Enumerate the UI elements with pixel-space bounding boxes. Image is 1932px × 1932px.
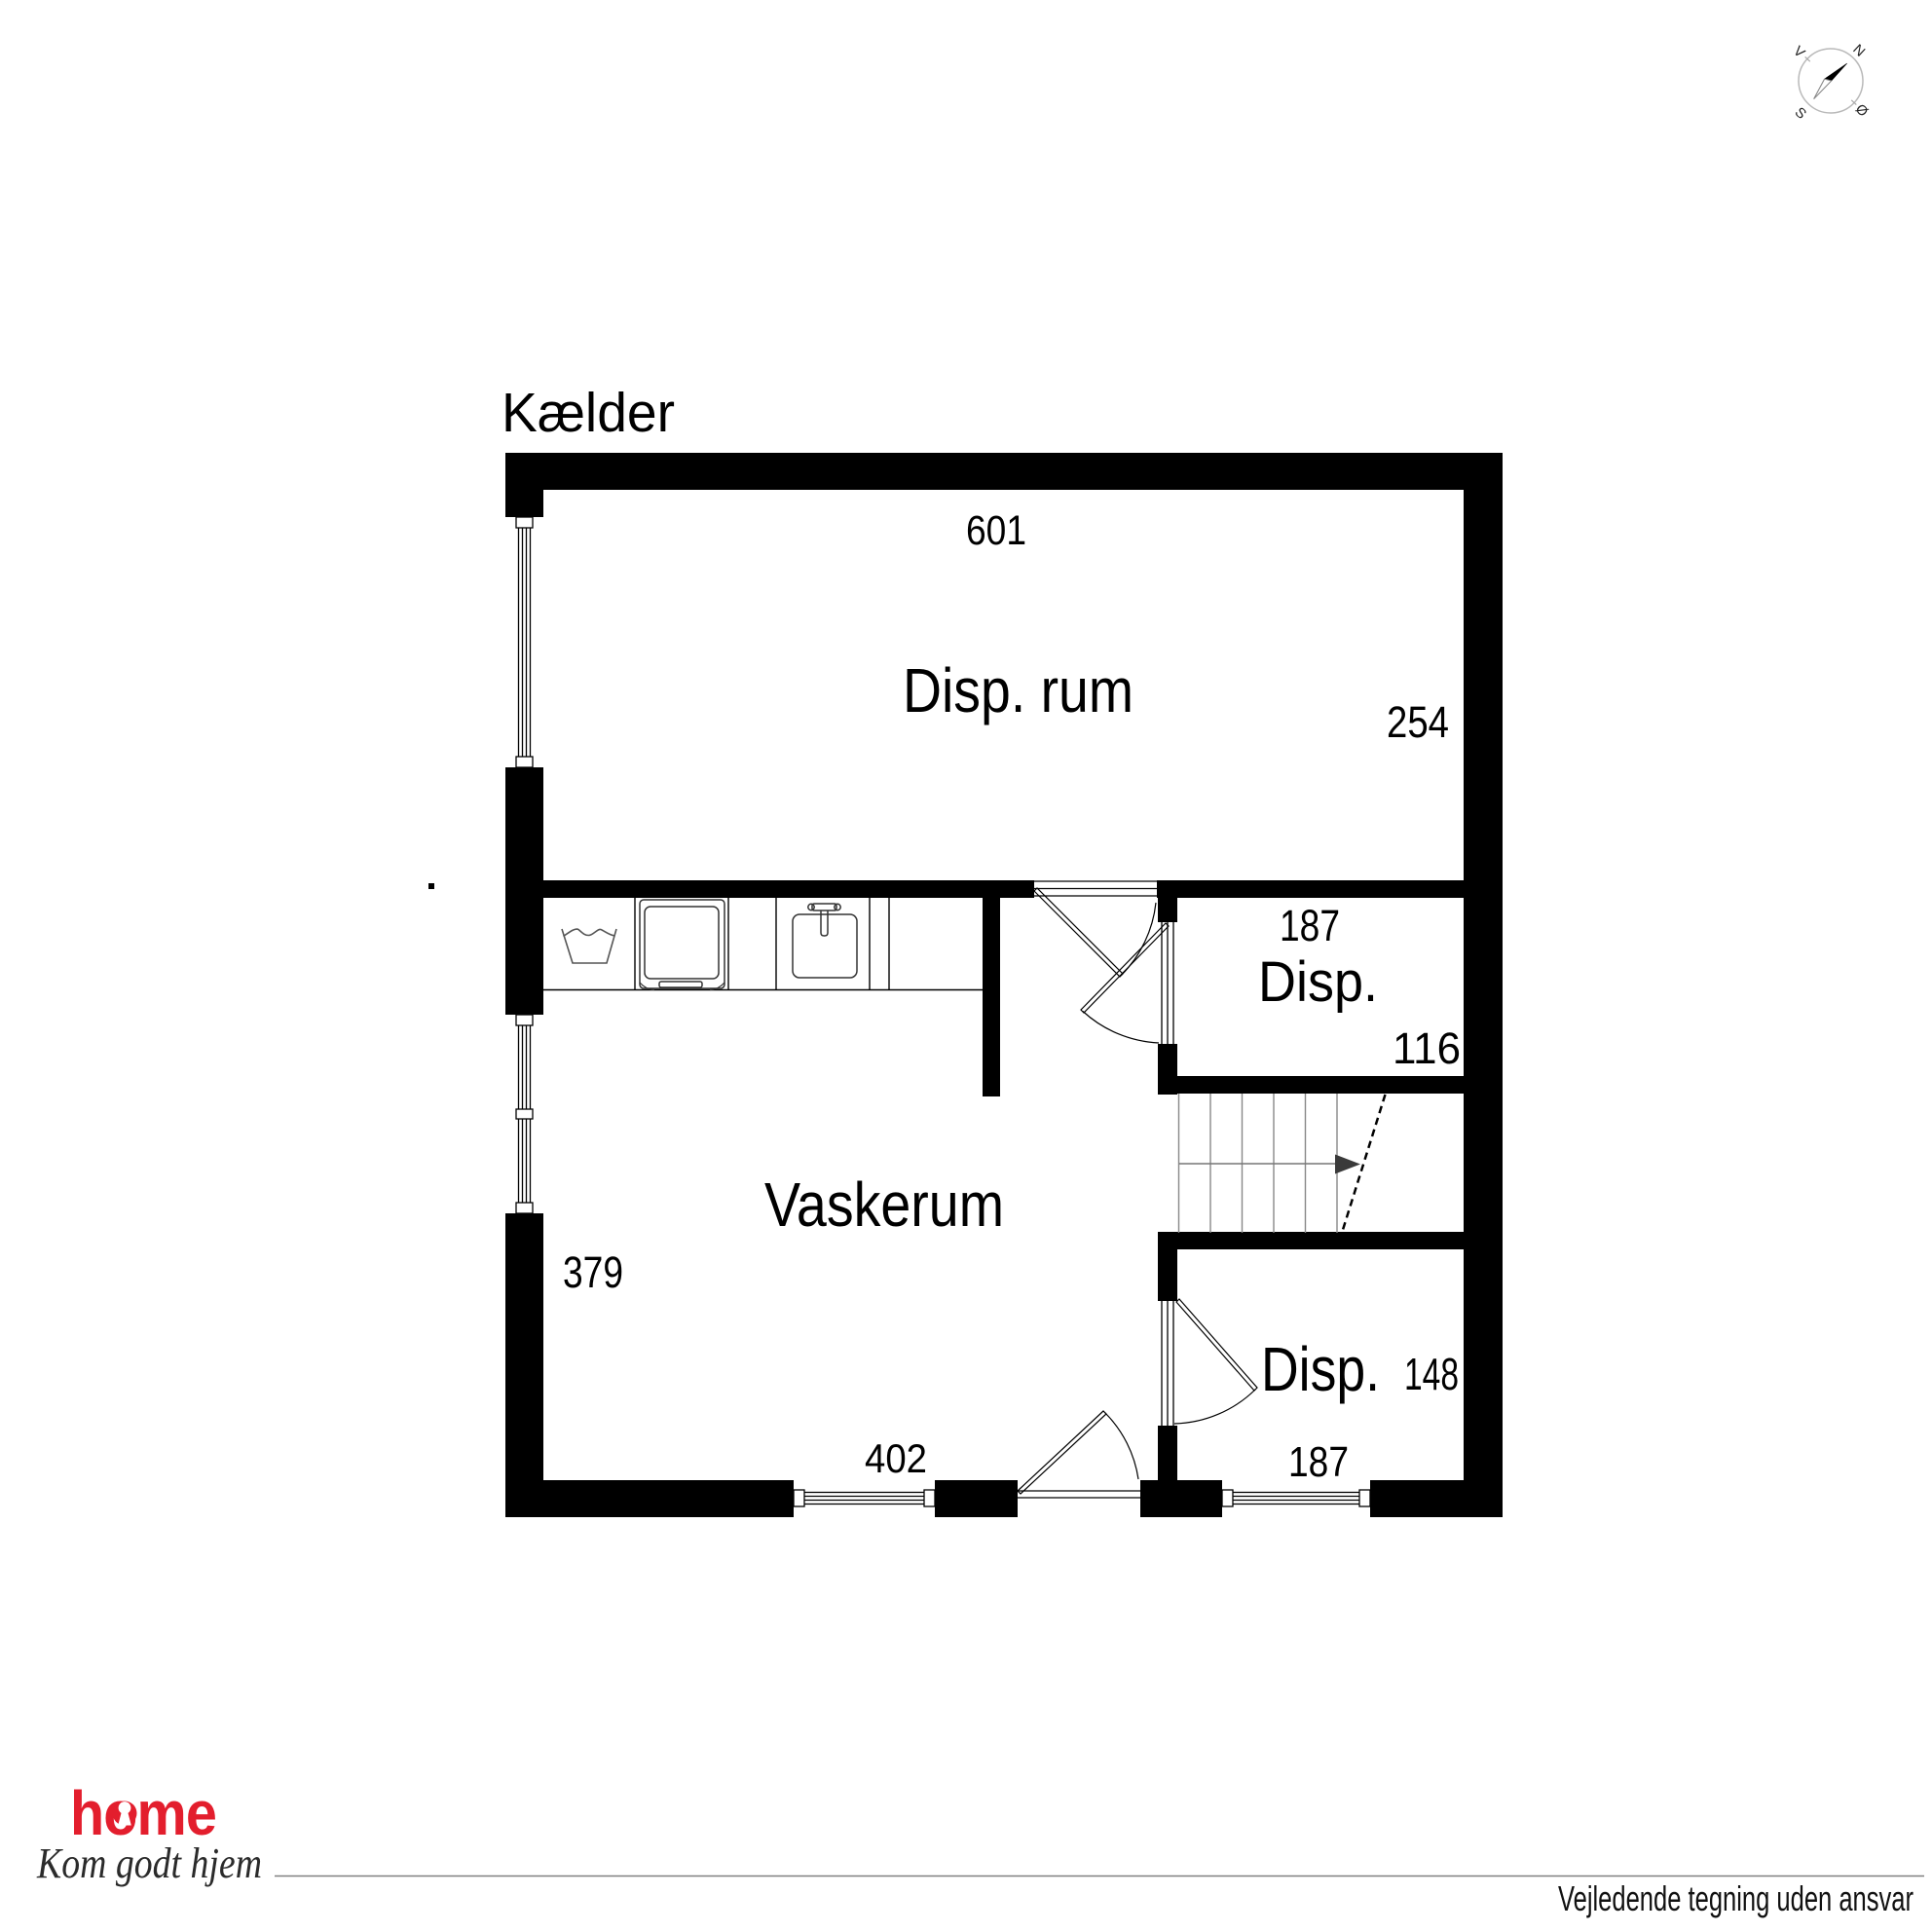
svg-text:254: 254 bbox=[1387, 697, 1449, 747]
svg-text:Disp.: Disp. bbox=[1261, 1334, 1380, 1404]
svg-text:Disp.: Disp. bbox=[1258, 950, 1378, 1014]
svg-text:home: home bbox=[70, 1778, 216, 1848]
svg-text:Vejledende tegning uden ansvar: Vejledende tegning uden ansvar bbox=[1558, 1878, 1913, 1918]
svg-text:379: 379 bbox=[563, 1247, 623, 1297]
svg-text:187: 187 bbox=[1288, 1438, 1349, 1486]
svg-text:148: 148 bbox=[1404, 1349, 1459, 1399]
svg-text:Vaskerum: Vaskerum bbox=[764, 1170, 1004, 1240]
svg-text:Kælder: Kælder bbox=[502, 382, 675, 444]
svg-text:116: 116 bbox=[1393, 1023, 1461, 1073]
svg-text:187: 187 bbox=[1280, 901, 1340, 950]
svg-text:Disp. rum: Disp. rum bbox=[903, 655, 1133, 725]
svg-text:402: 402 bbox=[865, 1435, 927, 1481]
svg-text:Kom godt hjem: Kom godt hjem bbox=[36, 1839, 262, 1887]
svg-text:601: 601 bbox=[966, 507, 1026, 554]
